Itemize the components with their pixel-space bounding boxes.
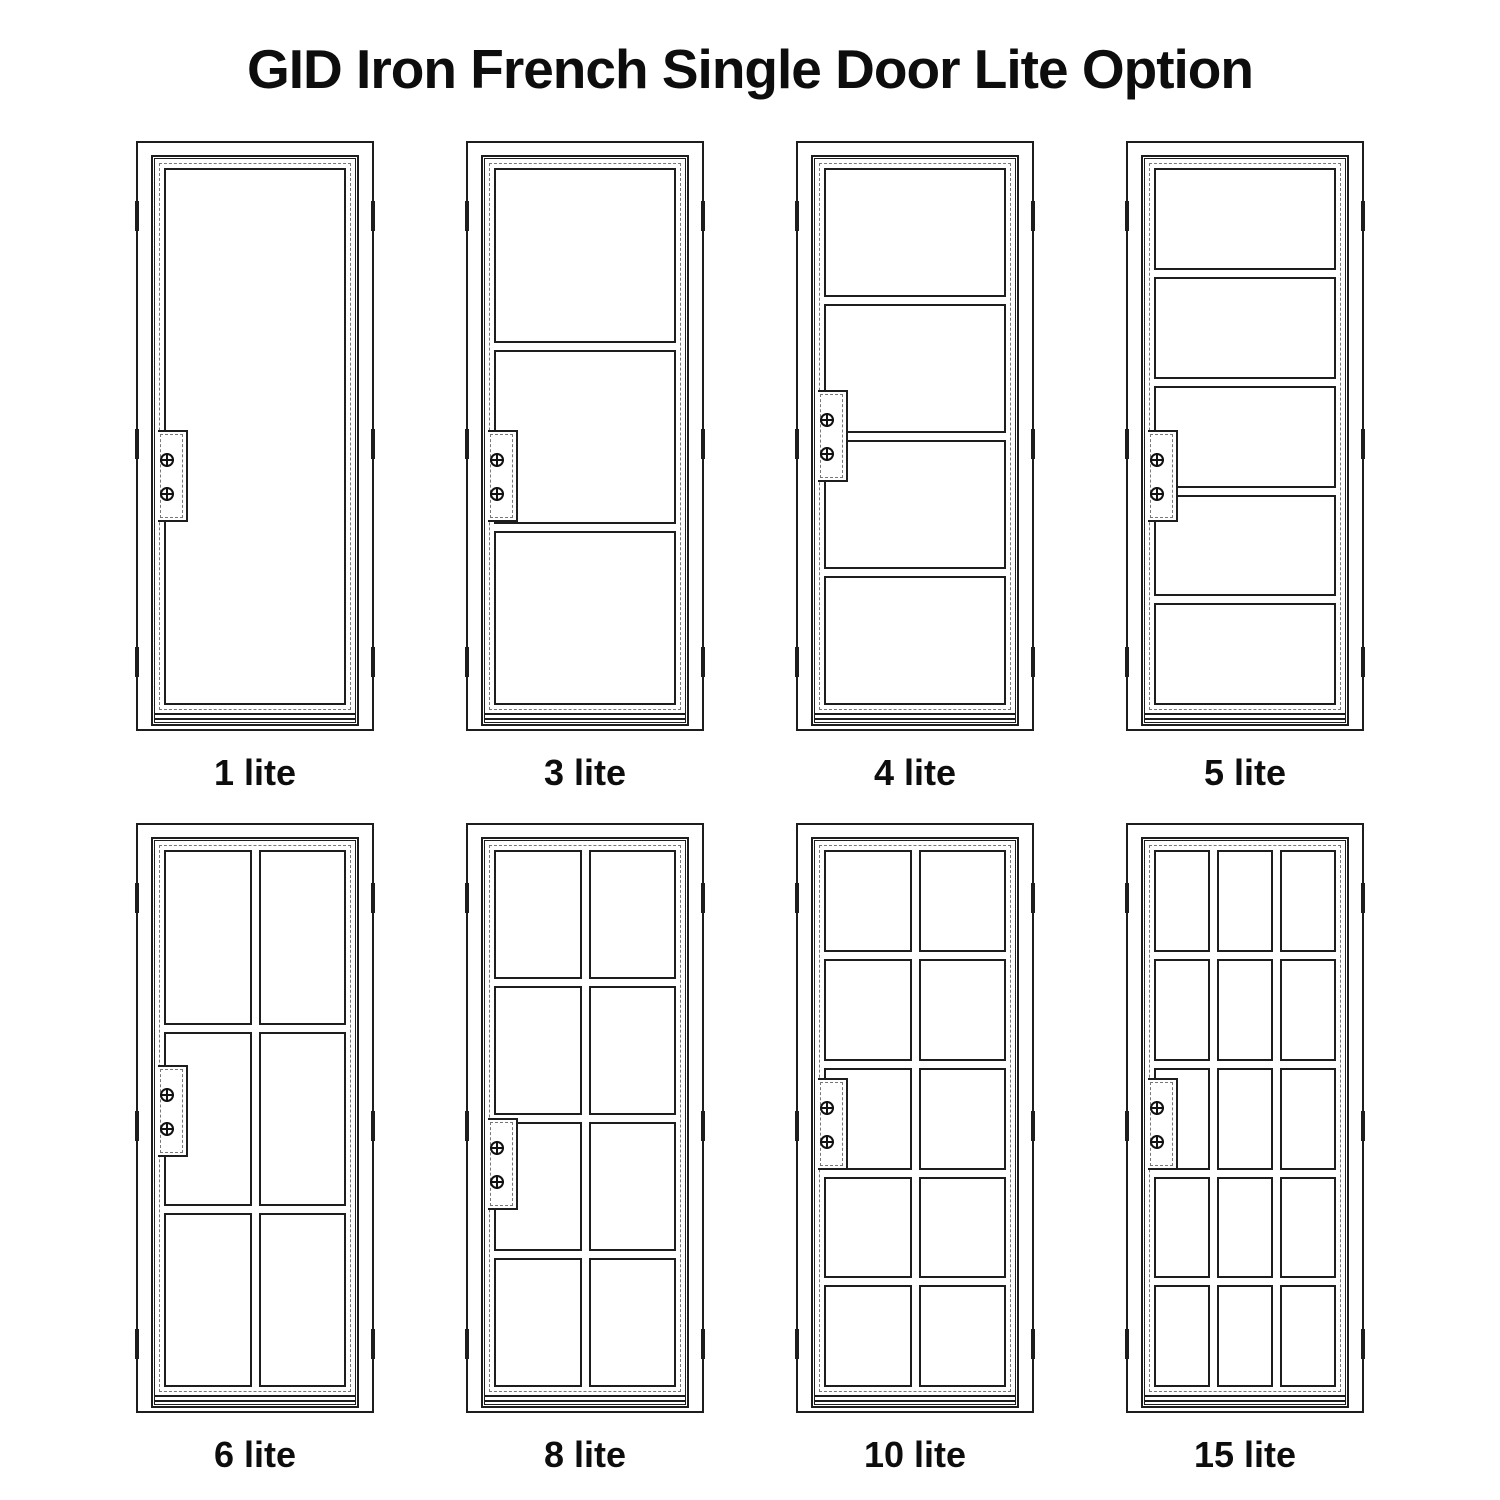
glass-pane bbox=[824, 1177, 912, 1279]
glass-pane bbox=[164, 1213, 252, 1387]
glass-pane bbox=[494, 1258, 582, 1387]
lock-plate bbox=[488, 430, 518, 522]
hinge-mark-icon bbox=[701, 647, 705, 677]
hinge-mark-icon bbox=[1031, 647, 1035, 677]
door-option: 10 lite bbox=[796, 823, 1034, 1477]
hinge-mark-icon bbox=[465, 1329, 469, 1359]
door-option: 5 lite bbox=[1126, 141, 1364, 795]
glass-pane bbox=[259, 1213, 347, 1387]
hinge-mark-icon bbox=[1361, 647, 1365, 677]
glass-pane bbox=[589, 1258, 677, 1387]
lock-plate bbox=[1148, 1078, 1178, 1170]
glass-pane bbox=[494, 168, 676, 342]
lock-plate-outline bbox=[490, 1122, 513, 1206]
door-drawing bbox=[466, 141, 704, 731]
hinge-mark-icon bbox=[795, 647, 799, 677]
door-label: 3 lite bbox=[544, 751, 626, 795]
bottom-rail bbox=[155, 1395, 355, 1402]
door-label: 8 lite bbox=[544, 1433, 626, 1477]
door-drawing bbox=[1126, 141, 1364, 731]
glass-pane bbox=[1280, 1177, 1336, 1279]
door-drawing bbox=[1126, 823, 1364, 1413]
glass-pane bbox=[824, 304, 1006, 433]
hinge-mark-icon bbox=[135, 883, 139, 913]
glass-pane bbox=[824, 1285, 912, 1387]
hinge-mark-icon bbox=[795, 883, 799, 913]
hinge-mark-icon bbox=[1125, 647, 1129, 677]
lock-plate bbox=[1148, 430, 1178, 522]
door-label: 1 lite bbox=[214, 751, 296, 795]
hinge-mark-icon bbox=[795, 1329, 799, 1359]
glass-pane bbox=[1154, 1285, 1210, 1387]
hinge-mark-icon bbox=[465, 883, 469, 913]
door-label: 5 lite bbox=[1204, 751, 1286, 795]
lock-plate bbox=[158, 430, 188, 522]
glass-pane bbox=[1280, 1285, 1336, 1387]
door-label: 6 lite bbox=[214, 1433, 296, 1477]
glass-pane bbox=[589, 986, 677, 1115]
hinge-mark-icon bbox=[795, 429, 799, 459]
hinge-mark-icon bbox=[135, 429, 139, 459]
hinge-mark-icon bbox=[1031, 1329, 1035, 1359]
lock-plate bbox=[158, 1065, 188, 1157]
bottom-rail bbox=[815, 713, 1015, 720]
glass-pane bbox=[919, 1285, 1007, 1387]
hinge-mark-icon bbox=[135, 201, 139, 231]
hinge-mark-icon bbox=[795, 201, 799, 231]
lock-plate-outline bbox=[1150, 434, 1173, 518]
glass-pane bbox=[1280, 959, 1336, 1061]
hinge-mark-icon bbox=[371, 201, 375, 231]
hinge-mark-icon bbox=[1361, 201, 1365, 231]
bottom-rail bbox=[815, 1395, 1015, 1402]
glass-pane bbox=[1217, 959, 1273, 1061]
door-option: 4 lite bbox=[796, 141, 1034, 795]
hinge-mark-icon bbox=[1031, 201, 1035, 231]
hinge-mark-icon bbox=[465, 429, 469, 459]
glass-pane bbox=[824, 440, 1006, 569]
lock-plate bbox=[818, 390, 848, 482]
glass-pane bbox=[824, 959, 912, 1061]
hinge-mark-icon bbox=[1361, 1329, 1365, 1359]
glass-pane bbox=[494, 531, 676, 705]
glass-pane bbox=[259, 1032, 347, 1206]
hinge-mark-icon bbox=[795, 1111, 799, 1141]
glass-pane bbox=[589, 850, 677, 979]
bottom-rail bbox=[485, 713, 685, 720]
door-drawing bbox=[796, 823, 1034, 1413]
door-options-grid: 1 lite 3 lite bbox=[90, 141, 1410, 1477]
lock-plate-outline bbox=[820, 394, 843, 478]
hinge-mark-icon bbox=[701, 883, 705, 913]
door-label: 4 lite bbox=[874, 751, 956, 795]
door-drawing bbox=[136, 141, 374, 731]
lock-plate-outline bbox=[1150, 1082, 1173, 1166]
lock-plate-outline bbox=[160, 434, 183, 518]
lock-plate bbox=[488, 1118, 518, 1210]
hinge-mark-icon bbox=[371, 1111, 375, 1141]
glass-pane bbox=[919, 959, 1007, 1061]
glass-pane bbox=[494, 986, 582, 1115]
glass-pane bbox=[494, 350, 676, 524]
glass-pane bbox=[1280, 1068, 1336, 1170]
glass-pane bbox=[1154, 168, 1336, 270]
glass-pane bbox=[824, 168, 1006, 297]
glass-pane bbox=[589, 1122, 677, 1251]
bottom-rail bbox=[1145, 713, 1345, 720]
door-option: 15 lite bbox=[1126, 823, 1364, 1477]
glass-pane bbox=[824, 850, 912, 952]
hinge-mark-icon bbox=[371, 883, 375, 913]
glass-pane bbox=[1217, 850, 1273, 952]
hinge-mark-icon bbox=[1125, 1329, 1129, 1359]
hinge-mark-icon bbox=[1125, 883, 1129, 913]
glass-pane bbox=[1217, 1285, 1273, 1387]
glass-pane bbox=[824, 576, 1006, 705]
glass-pane bbox=[919, 1177, 1007, 1279]
lock-plate bbox=[818, 1078, 848, 1170]
door-option: 8 lite bbox=[466, 823, 704, 1477]
glass-pane bbox=[1154, 386, 1336, 488]
hinge-mark-icon bbox=[701, 201, 705, 231]
hinge-mark-icon bbox=[1361, 883, 1365, 913]
door-drawing bbox=[466, 823, 704, 1413]
hinge-mark-icon bbox=[465, 647, 469, 677]
hinge-mark-icon bbox=[371, 429, 375, 459]
glass-pane bbox=[1154, 277, 1336, 379]
door-option: 3 lite bbox=[466, 141, 704, 795]
hinge-mark-icon bbox=[135, 1111, 139, 1141]
hinge-mark-icon bbox=[701, 1329, 705, 1359]
hinge-mark-icon bbox=[1361, 1111, 1365, 1141]
hinge-mark-icon bbox=[135, 647, 139, 677]
page-title: GID Iron French Single Door Lite Option bbox=[0, 38, 1500, 101]
glass-pane bbox=[1217, 1177, 1273, 1279]
hinge-mark-icon bbox=[1125, 1111, 1129, 1141]
hinge-mark-icon bbox=[371, 1329, 375, 1359]
hinge-mark-icon bbox=[1031, 429, 1035, 459]
lock-plate-outline bbox=[160, 1069, 183, 1153]
hinge-mark-icon bbox=[1031, 1111, 1035, 1141]
hinge-mark-icon bbox=[1125, 201, 1129, 231]
door-drawing bbox=[796, 141, 1034, 731]
glass-pane bbox=[919, 1068, 1007, 1170]
door-label: 15 lite bbox=[1194, 1433, 1296, 1477]
door-option: 1 lite bbox=[136, 141, 374, 795]
hinge-mark-icon bbox=[701, 429, 705, 459]
door-label: 10 lite bbox=[864, 1433, 966, 1477]
page: GID Iron French Single Door Lite Option … bbox=[0, 0, 1500, 1500]
glass-pane bbox=[1217, 1068, 1273, 1170]
glass-pane bbox=[494, 850, 582, 979]
hinge-mark-icon bbox=[135, 1329, 139, 1359]
hinge-mark-icon bbox=[371, 647, 375, 677]
glass-pane bbox=[164, 850, 252, 1024]
glass-pane bbox=[1154, 850, 1210, 952]
glass-pane bbox=[1280, 850, 1336, 952]
bottom-rail bbox=[485, 1395, 685, 1402]
glass-pane bbox=[1154, 495, 1336, 597]
hinge-mark-icon bbox=[1125, 429, 1129, 459]
hinge-mark-icon bbox=[465, 201, 469, 231]
hinge-mark-icon bbox=[701, 1111, 705, 1141]
hinge-mark-icon bbox=[465, 1111, 469, 1141]
glass-pane bbox=[1154, 1177, 1210, 1279]
lock-plate-outline bbox=[490, 434, 513, 518]
door-option: 6 lite bbox=[136, 823, 374, 1477]
glass-pane bbox=[919, 850, 1007, 952]
glass-pane bbox=[259, 850, 347, 1024]
glass-pane bbox=[164, 168, 346, 705]
bottom-rail bbox=[1145, 1395, 1345, 1402]
hinge-mark-icon bbox=[1361, 429, 1365, 459]
lock-plate-outline bbox=[820, 1082, 843, 1166]
glass-pane bbox=[1154, 959, 1210, 1061]
door-drawing bbox=[136, 823, 374, 1413]
hinge-mark-icon bbox=[1031, 883, 1035, 913]
glass-pane bbox=[1154, 603, 1336, 705]
bottom-rail bbox=[155, 713, 355, 720]
